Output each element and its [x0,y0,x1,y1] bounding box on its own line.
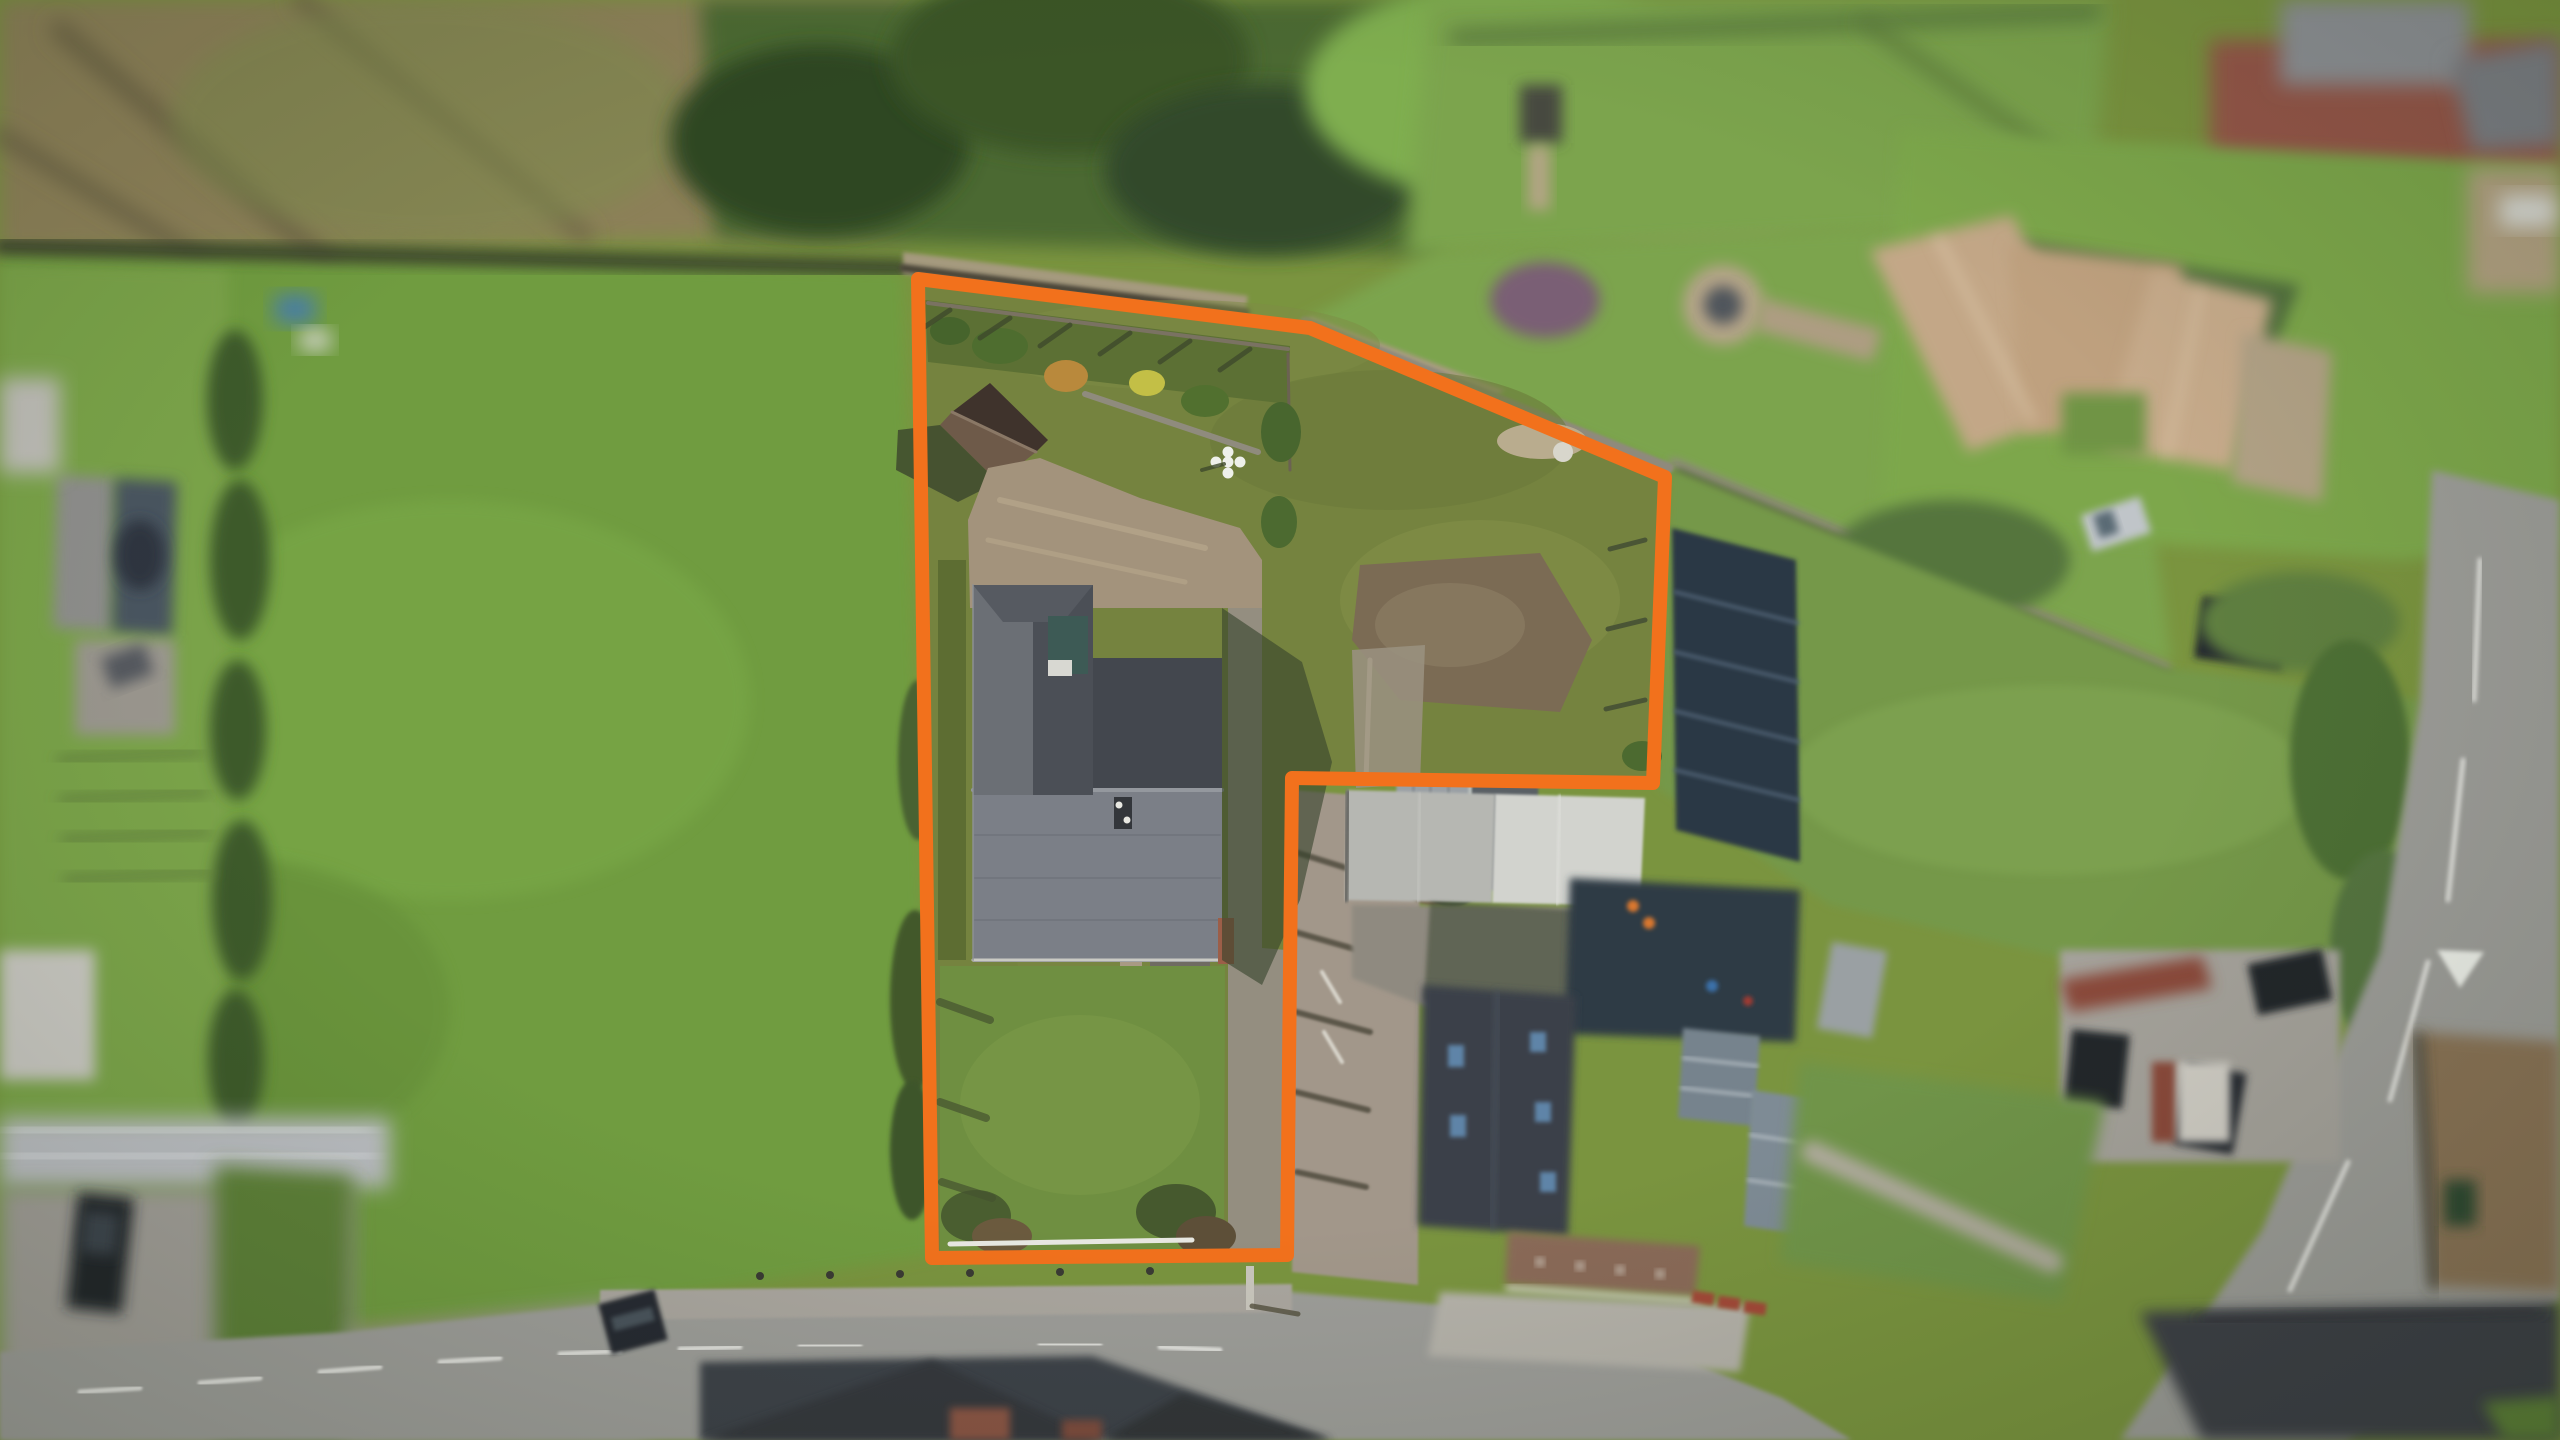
parked-car-2 [2064,1029,2129,1109]
tree-row-1 [207,330,263,470]
glass-roof-stripe-2 [10,1154,370,1158]
scene-svg [0,0,2560,1440]
bollard-5 [1056,1268,1064,1276]
south-brick-1 [950,1408,1010,1440]
blue-tarp [275,295,315,323]
pasture-light-streak [1790,685,2310,875]
hivis-dot-1 [1627,900,1639,912]
rock-ring [1553,442,1573,462]
wing-window-2 [1576,1262,1584,1270]
glass-roof-stripe-1 [10,1128,370,1132]
villa-driveway-loop [2232,332,2332,502]
white-van [2500,195,2556,227]
kiosk-red [2152,1062,2176,1142]
ground-solar-array [1672,528,1800,862]
bollard-2 [826,1271,834,1279]
complex-flat-roof [1565,878,1800,1042]
hivis-dot-2 [1643,917,1655,929]
wing-window-1 [1536,1258,1544,1266]
kiosk-roof [2178,1062,2230,1142]
aerial-photo-viewport [0,0,2560,1440]
dirt-lot-container [2444,1180,2476,1226]
tree-row-5 [208,990,264,1130]
skylight-3 [1530,1032,1546,1052]
flower-display-dot-4 [1235,457,1246,468]
warehouse-eave [1346,792,1348,900]
bed-bush-yellow [1129,370,1165,396]
tree-row-4 [212,820,272,980]
play-path [1528,146,1550,210]
parked-dark-car-roof [80,1210,120,1256]
front-shrub-bl-2 [972,1218,1032,1254]
blue-dot [1706,980,1718,992]
bed-bush-orange [1044,360,1088,392]
chimney-cap [1048,660,1072,676]
chimney-pot-1 [1116,802,1123,809]
scrub-green-patch [170,0,690,240]
hot-tub [1704,286,1742,324]
house-main-north-slope [1093,658,1222,792]
bed-bush-1 [972,328,1028,364]
front-lawn-mottle [960,1015,1200,1195]
flower-display-dot-5 [1223,468,1234,479]
old-concrete-strip [1352,645,1425,788]
wing-window-4 [1656,1270,1664,1278]
barn-roof-vent [115,520,165,590]
wing-window-3 [1616,1266,1624,1274]
road-dash-7 [800,1345,860,1346]
dirt-lot [2415,1032,2560,1292]
flower-display-dot-1 [1223,447,1234,458]
road-dash-10 [1160,1347,1220,1350]
bollard-1 [756,1272,764,1280]
main-chimney [1114,797,1132,829]
chimney-pot-2 [1124,817,1131,824]
red-dot [1743,996,1753,1006]
bollard-3 [896,1270,904,1278]
villa-courtyard [2062,393,2146,455]
skylight-5 [1540,1172,1556,1192]
tree-row-3 [210,660,266,800]
skylight-4 [1535,1102,1551,1122]
atrium-a [1678,1028,1760,1126]
right-hedge-1 [2290,640,2410,880]
inner-west-hedge [938,560,966,960]
skylight-1 [1448,1045,1464,1067]
road-dash-6 [680,1347,740,1349]
gravel-top-right [2468,168,2560,293]
purple-shrub [1490,262,1600,338]
east-fence-bush-2 [1261,496,1297,548]
greenhouse-2 [0,378,60,473]
warehouse-streak-1 [1418,794,1420,901]
cold-frames [300,330,330,350]
tree-row-2 [210,480,270,640]
house-main-south-slope [973,790,1222,962]
bed-bush-2 [1181,385,1229,417]
red-house-roof [2280,0,2470,85]
long-barn-left-slope [53,475,115,632]
bollard-4 [966,1269,974,1277]
bollard-6 [1146,1267,1154,1275]
play-structure [1520,85,1562,143]
east-fence-bush-1 [1261,402,1301,462]
road-dash-9 [1040,1344,1100,1345]
greenhouse-1 [0,950,95,1080]
utility-pole [1246,1266,1254,1310]
south-brick-2 [1062,1420,1102,1440]
skylight-2 [1450,1115,1466,1137]
